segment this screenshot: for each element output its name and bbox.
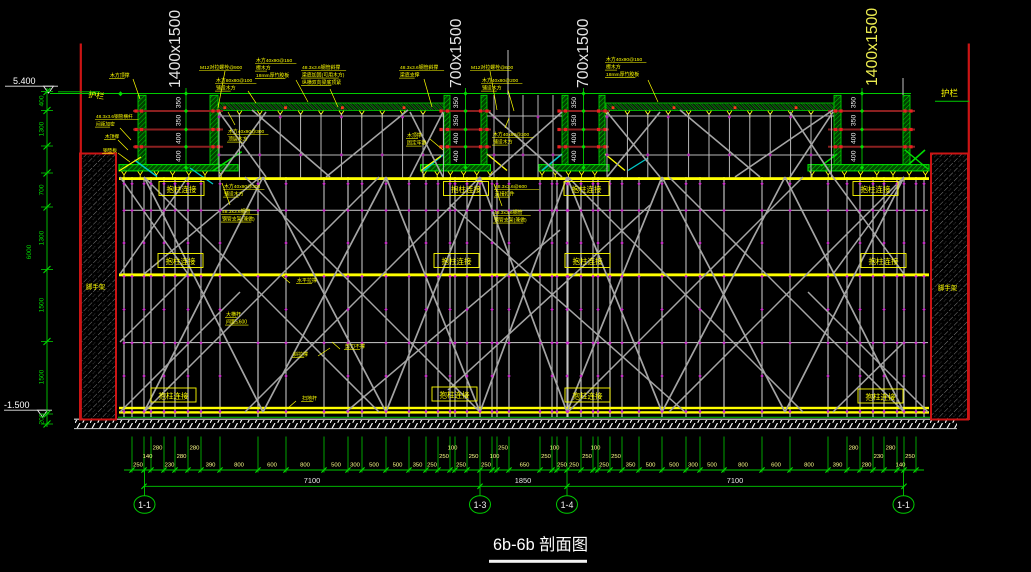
svg-text:350: 350 [453,115,460,127]
svg-text:木顶撑: 木顶撑 [105,133,119,140]
svg-text:顶层木方: 顶层木方 [228,136,248,143]
svg-text:800: 800 [300,463,311,469]
svg-text:脚手架: 脚手架 [86,282,106,291]
svg-text:48.3x3.6@600: 48.3x3.6@600 [495,184,527,190]
svg-text:抱柱连接: 抱柱连接 [869,256,899,266]
svg-text:350: 350 [571,97,578,109]
svg-text:300: 300 [688,463,699,469]
svg-text:280: 280 [849,446,860,452]
svg-text:280: 280 [177,454,188,460]
svg-text:400: 400 [39,95,46,106]
svg-text:350: 350 [571,115,578,127]
svg-text:抱柱连接: 抱柱连接 [167,184,197,194]
svg-text:400: 400 [176,150,183,162]
svg-text:抱柱连接: 抱柱连接 [866,392,896,402]
svg-text:800: 800 [804,463,815,469]
svg-text:钢管支架(兼做): 钢管支架(兼做) [494,217,527,224]
svg-text:1850: 1850 [515,476,531,485]
svg-text:间距加密: 间距加密 [96,121,115,128]
svg-text:400: 400 [453,132,460,144]
svg-text:48.3x3.6钢管横杆: 48.3x3.6钢管横杆 [96,113,133,120]
svg-text:抱柱连接: 抱柱连接 [451,184,481,194]
svg-text:250: 250 [456,463,467,469]
svg-text:1-1: 1-1 [897,500,910,510]
svg-text:500: 500 [393,463,404,469]
svg-text:280: 280 [153,446,164,452]
svg-text:抱柱连接: 抱柱连接 [861,184,891,194]
svg-text:1500: 1500 [39,369,46,384]
svg-text:350: 350 [851,97,858,109]
svg-text:1-3: 1-3 [474,500,487,510]
svg-text:650: 650 [520,463,531,469]
svg-text:1400x1500: 1400x1500 [864,8,881,86]
svg-text:M12对拉螺栓@900: M12对拉螺栓@900 [200,64,242,71]
svg-text:400: 400 [571,132,578,144]
svg-text:7100: 7100 [304,476,320,485]
svg-text:48.3x3.6钢管: 48.3x3.6钢管 [494,209,523,216]
svg-text:木方40x90@150: 木方40x90@150 [256,57,293,64]
svg-text:250: 250 [427,463,438,469]
svg-text:250: 250 [498,446,509,452]
svg-text:铺设木方: 铺设木方 [482,85,502,92]
svg-text:350: 350 [851,115,858,127]
svg-text:1300: 1300 [39,121,46,136]
svg-text:500: 500 [331,463,342,469]
svg-text:木方40x80@200: 木方40x80@200 [482,77,519,84]
svg-text:100: 100 [490,454,501,460]
svg-text:800: 800 [234,463,245,469]
svg-text:140: 140 [896,463,907,469]
svg-text:350: 350 [413,463,424,469]
svg-text:250: 250 [905,454,916,460]
svg-text:390: 390 [833,463,844,469]
svg-text:250: 250 [582,454,593,460]
svg-text:280: 280 [190,446,201,452]
svg-text:700: 700 [39,184,46,195]
svg-text:抱柱连接: 抱柱连接 [159,391,189,401]
svg-text:48.3x3.6钢管: 48.3x3.6钢管 [222,208,251,215]
svg-text:护栏: 护栏 [941,88,959,98]
svg-text:木顶撑: 木顶撑 [407,132,422,139]
svg-text:100: 100 [448,446,459,452]
svg-text:48.3x3.6钢管斜撑: 48.3x3.6钢管斜撑 [302,64,340,71]
svg-text:140: 140 [143,454,154,460]
svg-text:固定牢靠: 固定牢靠 [407,140,427,147]
svg-text:230: 230 [165,463,176,469]
svg-text:400: 400 [851,150,858,162]
svg-text:250: 250 [541,454,552,460]
svg-text:抱柱连接: 抱柱连接 [442,256,472,266]
svg-text:剪刀不撑: 剪刀不撑 [345,343,365,350]
svg-text:楞木方: 楞木方 [256,65,271,72]
svg-text:斜拉撑: 斜拉撑 [293,351,308,358]
svg-text:500: 500 [669,463,680,469]
svg-text:300: 300 [350,463,361,469]
svg-text:350: 350 [176,115,183,127]
svg-text:18mm厚竹胶板: 18mm厚竹胶板 [606,71,639,78]
svg-text:250: 250 [611,454,622,460]
svg-text:500: 500 [707,463,718,469]
svg-text:1300: 1300 [39,230,46,245]
svg-text:1400x1500: 1400x1500 [167,10,184,88]
svg-text:纵横双向梁底顶紧: 纵横双向梁底顶紧 [302,79,341,86]
svg-text:230: 230 [874,454,885,460]
svg-text:6000: 6000 [26,244,33,259]
svg-text:M12对拉螺栓@600: M12对拉螺栓@600 [471,64,513,71]
svg-text:楞木方: 楞木方 [606,64,621,71]
svg-text:100: 100 [550,446,561,452]
svg-text:铺设木方: 铺设木方 [224,191,244,198]
svg-text:280: 280 [862,463,873,469]
svg-text:木方40x90@150: 木方40x90@150 [606,56,643,63]
svg-text:抱柱连接: 抱柱连接 [440,390,470,400]
svg-text:350: 350 [176,97,183,109]
svg-text:木方40x80@300: 木方40x80@300 [493,131,530,138]
svg-text:1500: 1500 [39,297,46,312]
svg-text:-1.500: -1.500 [4,400,30,410]
svg-text:抱柱连接: 抱柱连接 [573,391,603,401]
svg-text:390: 390 [206,463,217,469]
svg-text:大横杆: 大横杆 [226,311,241,318]
svg-text:梁底支撑: 梁底支撑 [400,72,420,79]
svg-text:抱柱连接: 抱柱连接 [572,184,602,194]
svg-text:钢管支架(兼做): 钢管支架(兼做) [222,216,255,223]
svg-text:木方80x80@100: 木方80x80@100 [216,77,253,84]
svg-text:5.400: 5.400 [13,76,36,86]
svg-text:800: 800 [738,463,749,469]
svg-text:400: 400 [176,132,183,144]
svg-text:连接扣件: 连接扣件 [495,191,515,198]
svg-text:250: 250 [569,463,580,469]
svg-text:水平拉撑: 水平拉撑 [297,277,317,284]
svg-text:500: 500 [646,463,657,469]
svg-text:抱柱连接: 抱柱连接 [573,256,603,266]
svg-text:间距≤600: 间距≤600 [226,319,247,326]
svg-text:7100: 7100 [727,476,743,485]
svg-text:抱柱连接: 抱柱连接 [166,256,196,266]
svg-text:100: 100 [591,446,602,452]
svg-text:280: 280 [886,446,897,452]
svg-text:钢垫板: 钢垫板 [103,147,117,154]
svg-text:700x1500: 700x1500 [448,18,465,88]
svg-text:250: 250 [133,463,144,469]
svg-text:梁底加固(可用木方): 梁底加固(可用木方) [302,72,345,79]
svg-text:200: 200 [39,413,46,424]
svg-text:18mm厚竹胶板: 18mm厚竹胶板 [256,72,289,79]
svg-text:1-1: 1-1 [138,500,151,510]
svg-text:48.3x3.6钢管斜撑: 48.3x3.6钢管斜撑 [400,64,438,71]
svg-text:600: 600 [267,463,278,469]
svg-text:250: 250 [469,454,480,460]
svg-text:6b-6b 剖面图: 6b-6b 剖面图 [493,536,588,554]
svg-text:250: 250 [439,454,450,460]
svg-text:350: 350 [626,463,637,469]
svg-text:500: 500 [369,463,380,469]
svg-text:木方顶撑: 木方顶撑 [110,72,130,79]
svg-text:250: 250 [481,463,492,469]
svg-text:木方40x90@300: 木方40x90@300 [228,128,265,135]
svg-text:350: 350 [453,97,460,109]
svg-text:1-4: 1-4 [561,500,574,510]
svg-text:扫地杆: 扫地杆 [302,395,317,402]
svg-text:400: 400 [571,150,578,162]
svg-text:脚手架: 脚手架 [938,283,958,292]
svg-text:600: 600 [771,463,782,469]
svg-text:700x1500: 700x1500 [575,18,592,88]
svg-text:木方40x90@300: 木方40x90@300 [224,183,261,190]
svg-text:400: 400 [851,132,858,144]
svg-text:250: 250 [557,463,568,469]
svg-text:250: 250 [599,463,610,469]
svg-text:铺设木方: 铺设木方 [216,85,236,92]
svg-text:400: 400 [453,150,460,162]
svg-text:铺设木方: 铺设木方 [493,139,513,146]
